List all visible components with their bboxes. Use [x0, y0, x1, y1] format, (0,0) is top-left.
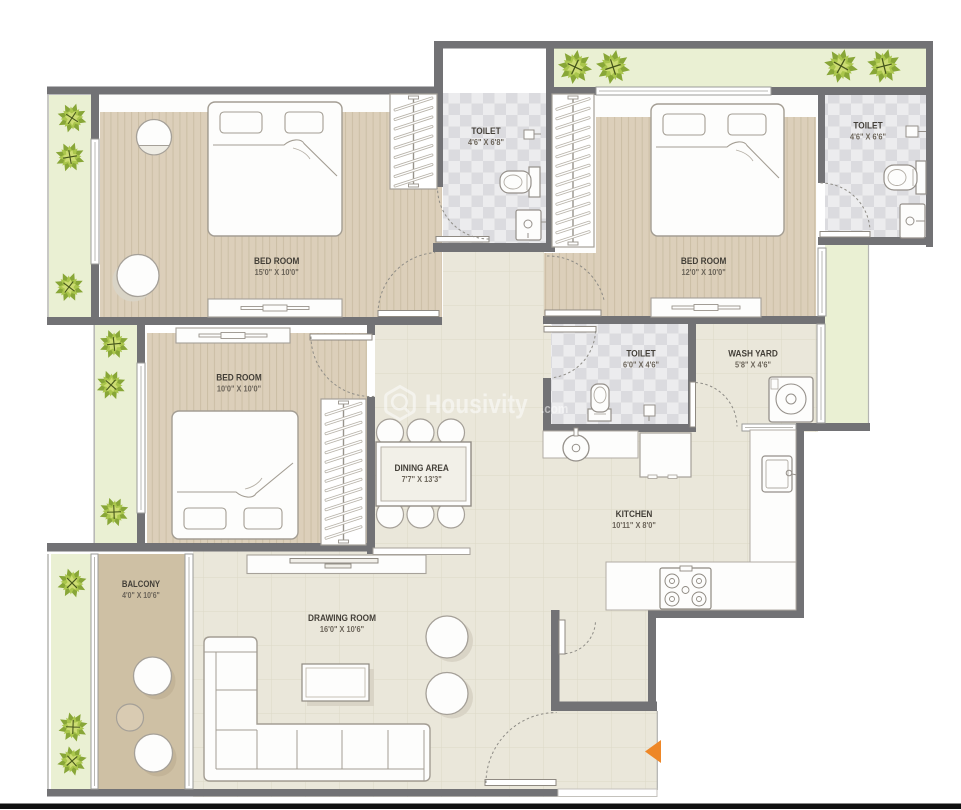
svg-text:10'11" X 8'0": 10'11" X 8'0": [612, 521, 656, 531]
svg-text:BALCONY: BALCONY: [122, 580, 161, 590]
svg-text:DRAWING ROOM: DRAWING ROOM: [308, 613, 376, 624]
svg-text:Housivity: Housivity: [425, 390, 528, 419]
svg-text:4'0" X 10'6": 4'0" X 10'6": [122, 591, 160, 601]
svg-text:4'6" X 6'8": 4'6" X 6'8": [468, 138, 504, 148]
svg-text:TOILET: TOILET: [626, 348, 656, 359]
svg-text:BED ROOM: BED ROOM: [681, 256, 726, 267]
svg-text:6'0" X 4'6": 6'0" X 4'6": [623, 360, 659, 370]
svg-text:12'0" X 10'0": 12'0" X 10'0": [681, 268, 725, 278]
svg-text:KITCHEN: KITCHEN: [616, 509, 653, 520]
svg-text:TOILET: TOILET: [471, 126, 501, 137]
svg-text:4'6" X 6'6": 4'6" X 6'6": [850, 132, 886, 142]
svg-text:BED ROOM: BED ROOM: [254, 256, 299, 267]
svg-text:.com: .com: [541, 401, 568, 416]
svg-text:5'8" X 4'6": 5'8" X 4'6": [735, 360, 771, 370]
svg-text:16'0" X 10'6": 16'0" X 10'6": [320, 625, 364, 635]
svg-text:7'7" X 13'3": 7'7" X 13'3": [402, 475, 442, 485]
svg-text:WASH YARD: WASH YARD: [728, 348, 778, 359]
svg-text:TOILET: TOILET: [853, 120, 883, 131]
svg-text:15'0" X 10'0": 15'0" X 10'0": [255, 268, 299, 278]
svg-text:BED ROOM: BED ROOM: [216, 372, 261, 383]
svg-text:DINING AREA: DINING AREA: [395, 463, 450, 474]
svg-text:10'0" X 10'0": 10'0" X 10'0": [217, 384, 261, 394]
